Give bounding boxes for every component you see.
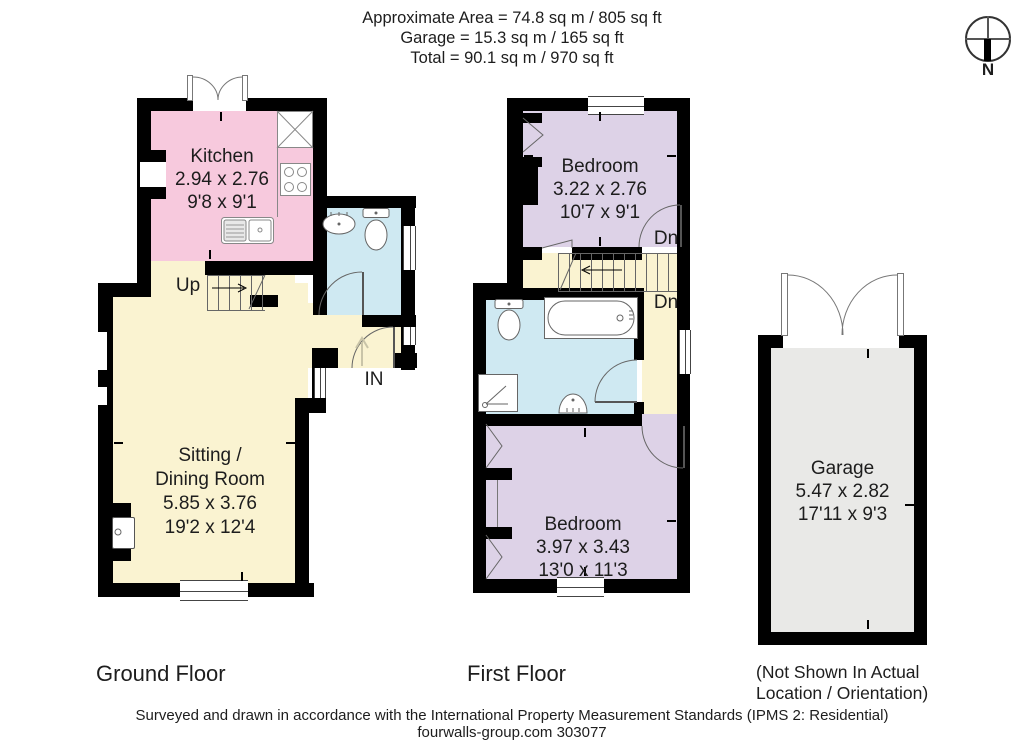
survey-disclaimer-line1: Surveyed and drawn in accordance with th… — [0, 707, 1024, 724]
wall-segment — [473, 283, 486, 593]
bedroom-1-size-imperial: 10'7 x 9'1 — [520, 201, 680, 224]
wall-segment — [634, 402, 644, 414]
bedroom-2-label: Bedroom 3.97 x 3.43 13'0 x 11'3 — [488, 513, 678, 582]
dimension-tick — [209, 250, 211, 259]
wc-toilet-icon — [362, 208, 390, 254]
area-summary: Approximate Area = 74.8 sq m / 805 sq ft… — [262, 8, 762, 68]
survey-disclaimer-line2: fourwalls-group.com 303077 — [0, 724, 1024, 741]
sitting-size-metric: 5.85 x 3.76 — [115, 492, 305, 516]
wall-segment — [914, 335, 927, 645]
wall-recess — [98, 332, 107, 370]
door-arc — [319, 272, 362, 315]
bedroom-1-label: Bedroom 3.22 x 2.76 10'7 x 9'1 — [520, 155, 680, 224]
bedroom-1-size-metric: 3.22 x 2.76 — [520, 178, 680, 201]
garage-note: (Not Shown In Actual Location / Orientat… — [746, 662, 948, 704]
bedroom-2-name: Bedroom — [488, 513, 678, 536]
stairs-break-line — [560, 253, 576, 290]
area-summary-line3: Total = 90.1 sq m / 970 sq ft — [262, 48, 762, 68]
wall-recess — [98, 387, 107, 405]
stairs-direction-arrow — [212, 283, 252, 293]
dimension-tick — [584, 428, 586, 437]
wall-segment — [98, 547, 131, 561]
compass-north-label: N — [976, 60, 1000, 80]
door-arc — [642, 426, 683, 468]
toilet-icon — [494, 299, 524, 343]
shower-icon — [478, 374, 518, 412]
door-leaf — [781, 273, 788, 336]
dimension-tick — [599, 112, 601, 121]
stairs-dn-label-1: Dn — [648, 228, 684, 250]
window — [679, 330, 691, 374]
kitchen-size-metric: 2.94 x 2.76 — [140, 168, 304, 191]
wall-segment — [758, 632, 927, 645]
garage-size-imperial: 17'11 x 9'3 — [770, 503, 915, 526]
door-arc — [218, 77, 243, 100]
compass-needle — [984, 39, 991, 61]
dimension-tick — [220, 112, 222, 121]
door-arc — [788, 275, 843, 335]
sitting-name-line1: Sitting / — [115, 444, 305, 468]
closet-door-icon — [542, 230, 572, 248]
dimension-tick — [867, 349, 869, 358]
wall-segment — [362, 315, 416, 327]
closet-door-icon — [523, 118, 543, 152]
door-arc — [842, 275, 897, 335]
bedroom-2-size-imperial: 13'0 x 11'3 — [488, 559, 678, 582]
sitting-dining-label: Sitting / Dining Room 5.85 x 3.76 19'2 x… — [115, 444, 305, 540]
garage-size-metric: 5.47 x 2.82 — [770, 480, 915, 503]
first-floor-title: First Floor — [467, 661, 607, 687]
bedroom-1-name: Bedroom — [520, 155, 680, 178]
window — [588, 96, 644, 115]
sitting-size-imperial: 19'2 x 12'4 — [115, 516, 305, 540]
survey-disclaimer: Surveyed and drawn in accordance with th… — [0, 707, 1024, 741]
kitchen-counter-icon — [277, 111, 313, 148]
window — [403, 226, 416, 270]
dimension-tick — [477, 520, 486, 522]
stairs-direction-arrow — [576, 265, 622, 275]
door-leaf — [362, 272, 364, 315]
entrance-in-label: IN — [355, 369, 393, 391]
door-arc — [193, 77, 218, 100]
area-summary-line2: Garage = 15.3 sq m / 165 sq ft — [262, 28, 762, 48]
compass-crosshair-v — [987, 16, 989, 39]
bathtub-icon — [544, 297, 638, 339]
garage-note-line1: (Not Shown In Actual — [756, 662, 948, 683]
kitchen-name: Kitchen — [140, 145, 304, 168]
garage-note-line2: Location / Orientation) — [756, 683, 948, 704]
dimension-tick — [599, 237, 601, 246]
window — [180, 580, 248, 601]
window — [314, 368, 326, 398]
wall-segment — [393, 353, 417, 368]
kitchen-label: Kitchen 2.94 x 2.76 9'8 x 9'1 — [140, 145, 304, 214]
area-summary-line1: Approximate Area = 74.8 sq m / 805 sq ft — [262, 8, 762, 28]
door-leaf — [683, 426, 685, 468]
wall-segment — [205, 261, 314, 275]
wc-basin-icon — [321, 209, 357, 235]
kitchen-size-imperial: 9'8 x 9'1 — [140, 191, 304, 214]
kitchen-sink-icon — [221, 217, 274, 244]
dimension-tick — [867, 620, 869, 629]
closet-door-icon — [486, 424, 502, 468]
garage-label: Garage 5.47 x 2.82 17'11 x 9'3 — [770, 457, 915, 526]
floorplan-page: Approximate Area = 74.8 sq m / 805 sq ft… — [0, 0, 1024, 743]
door-leaf — [393, 327, 395, 368]
door-arc — [595, 360, 637, 402]
bedroom-2-size-metric: 3.97 x 3.43 — [488, 536, 678, 559]
stairs-dn-label-2: Dn — [648, 292, 684, 314]
entry-arrow-icon — [355, 336, 369, 366]
ground-floor-title: Ground Floor — [96, 661, 256, 687]
garage-name: Garage — [770, 457, 915, 480]
sitting-name-line2: Dining Room — [115, 468, 305, 492]
dimension-tick — [241, 572, 243, 581]
door-leaf — [897, 273, 904, 336]
basin-icon — [556, 388, 590, 414]
wall-segment — [473, 468, 512, 480]
stairs-up-label: Up — [170, 275, 206, 297]
